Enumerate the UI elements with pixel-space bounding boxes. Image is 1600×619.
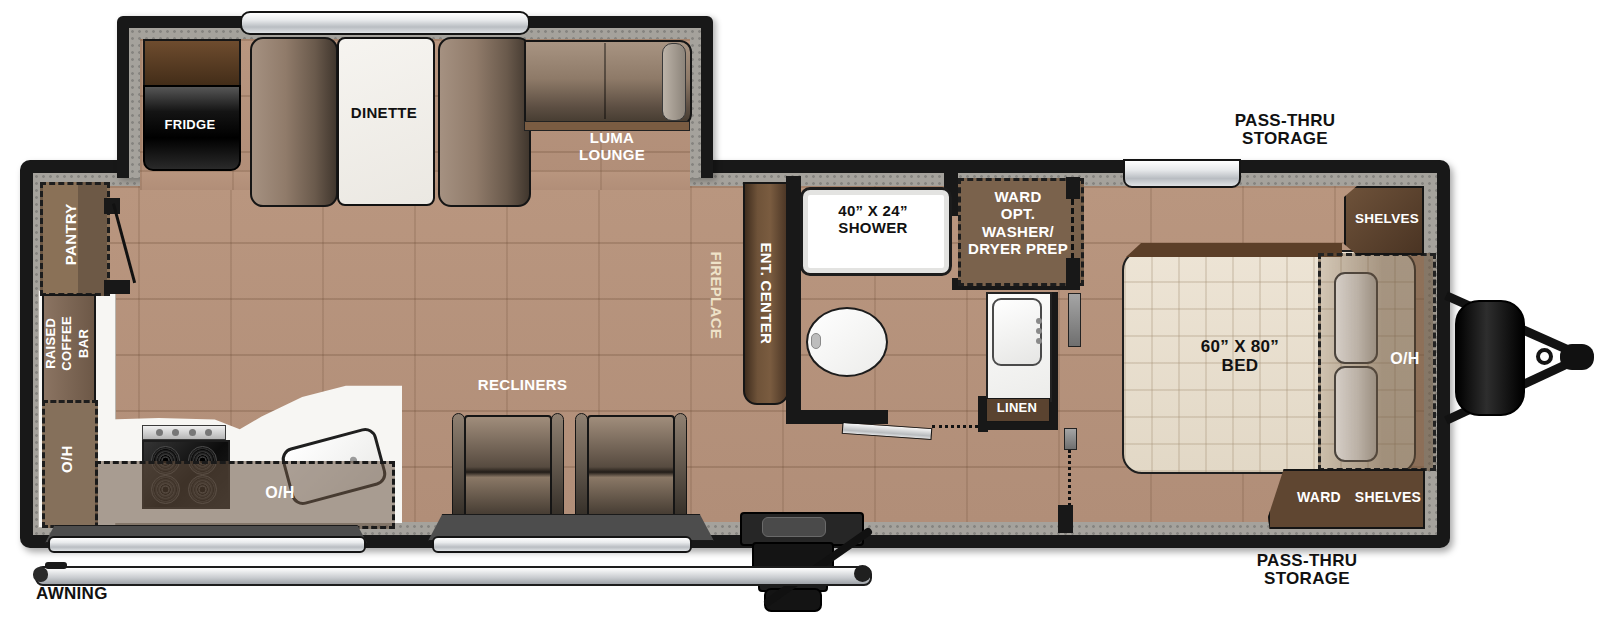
stove-knob xyxy=(172,429,179,436)
recliner-right xyxy=(575,413,687,525)
luma-lounge-label: LUMA LOUNGE xyxy=(557,130,667,163)
pass-thru-storage-top-label: PASS-THRU STORAGE xyxy=(1200,112,1370,148)
ward-label-line2: OPT. xyxy=(1001,205,1036,222)
recliner-seat xyxy=(464,415,552,523)
hitch-coupler xyxy=(1560,344,1594,370)
luma-lounge-label-line1: LUMA xyxy=(590,129,635,146)
overhead-left-label: O/H xyxy=(59,429,76,489)
bath-sink-faucet xyxy=(1036,318,1042,324)
bed-label-line1: 60” X 80” xyxy=(1201,337,1279,356)
shower-label-line2: SHOWER xyxy=(838,219,907,236)
pass-thru-top-line1: PASS-THRU xyxy=(1235,111,1336,130)
luma-lounge-sofa-divider xyxy=(604,43,606,119)
pass-thru-bottom-line1: PASS-THRU xyxy=(1257,551,1358,570)
dinette-table xyxy=(337,37,435,206)
overhead-kitchen-label: O/H xyxy=(250,484,310,502)
coffee-bar-line2: COFFEE xyxy=(59,316,74,371)
luma-lounge-label-line2: LOUNGE xyxy=(579,146,645,163)
bed-headboard xyxy=(1126,243,1342,257)
ward-label-line1: WARD xyxy=(994,188,1041,205)
shelves-bottom-label: SHELVES xyxy=(1352,490,1424,505)
toilet-hinge xyxy=(811,333,821,349)
linen-label: LINEN xyxy=(986,401,1048,415)
stove-control-strip xyxy=(142,425,226,440)
entry-door-swing-dashes xyxy=(932,425,978,428)
overhead-bed-label: O/H xyxy=(1380,350,1430,368)
overhead-cabinet-kitchen xyxy=(95,461,395,529)
raised-coffee-bar-label: RAISED COFFEE BAR xyxy=(43,293,92,393)
bedroom-door-dashes-bottom xyxy=(1068,450,1071,506)
kitchen-window xyxy=(48,536,366,553)
ward-label-line4: DRYER PREP xyxy=(968,240,1068,257)
ward-bottom-label: WARD xyxy=(1288,490,1350,505)
recliner-window xyxy=(432,536,692,553)
luma-lounge-armrest xyxy=(662,43,686,121)
stove-knob xyxy=(205,429,212,436)
shower-label: 40” X 24” SHOWER xyxy=(808,203,938,236)
pass-thru-top-line2: STORAGE xyxy=(1242,129,1328,148)
pass-thru-bottom-line2: STORAGE xyxy=(1264,569,1350,588)
dinette-label: DINETTE xyxy=(337,105,431,122)
awning-label: AWNING xyxy=(36,585,146,604)
bedroom-wall-stub-3 xyxy=(1058,505,1073,533)
dinette-bench-left xyxy=(250,37,338,207)
dinette-bench-right xyxy=(438,37,531,207)
bath-wall-bottom xyxy=(786,410,888,424)
bedroom-pocket-door xyxy=(1068,293,1081,347)
bedroom-pocket-door-lower xyxy=(1064,428,1077,450)
bedroom-wall-stub-1 xyxy=(1066,177,1080,199)
bath-wall-left xyxy=(786,176,801,416)
pantry-wall-stub-bottom xyxy=(104,280,130,294)
bed-label: 60” X 80” BED xyxy=(1165,338,1315,375)
stove-knob xyxy=(156,429,163,436)
ent-center-label: ENT. CENTER xyxy=(758,203,775,383)
coffee-bar-line1: RAISED xyxy=(43,318,58,369)
bedroom-door-dashes-top xyxy=(1071,199,1074,259)
bedroom-wall-stub-2 xyxy=(1066,258,1080,290)
pantry-label: PANTRY xyxy=(63,179,80,289)
awning-endcap-right xyxy=(854,565,871,582)
recliners-label: RECLINERS xyxy=(455,377,590,394)
awning-bar xyxy=(35,566,872,586)
coffee-bar-line3: BAR xyxy=(75,329,90,358)
recliner-seat xyxy=(587,415,675,523)
ward-label-line3: WASHER/ xyxy=(982,223,1054,240)
pass-thru-storage-bottom-label: PASS-THRU STORAGE xyxy=(1222,552,1392,588)
propane-tank xyxy=(1455,300,1525,416)
fridge-label: FRIDGE xyxy=(143,118,237,132)
recliner-left xyxy=(452,413,564,525)
shower-label-line1: 40” X 24” xyxy=(838,202,907,219)
slideout-window xyxy=(240,11,530,35)
bath-sink-basin xyxy=(992,298,1042,366)
awning-endcap-left xyxy=(33,567,48,582)
ward-washer-dryer-label: WARD OPT. WASHER/ DRYER PREP xyxy=(958,188,1078,257)
bedroom-window xyxy=(1123,159,1241,188)
toilet xyxy=(806,307,888,377)
fireplace-label: FIREPLACE xyxy=(708,220,725,370)
floorplan-canvas: FRIDGE DINETTE LUMA LOUNGE PANTRY RAISED… xyxy=(0,0,1600,619)
bed-label-line2: BED xyxy=(1222,356,1259,375)
fridge-cabinet-top xyxy=(143,39,241,91)
recliner-armrest xyxy=(674,413,687,525)
hitch-jack-ring xyxy=(1536,348,1553,365)
awning-endcap-left-tab xyxy=(45,562,67,569)
recliner-armrest xyxy=(551,413,564,525)
shelves-top-label: SHELVES xyxy=(1350,212,1424,227)
stove-knob xyxy=(189,429,196,436)
entry-step-mat xyxy=(762,517,826,537)
